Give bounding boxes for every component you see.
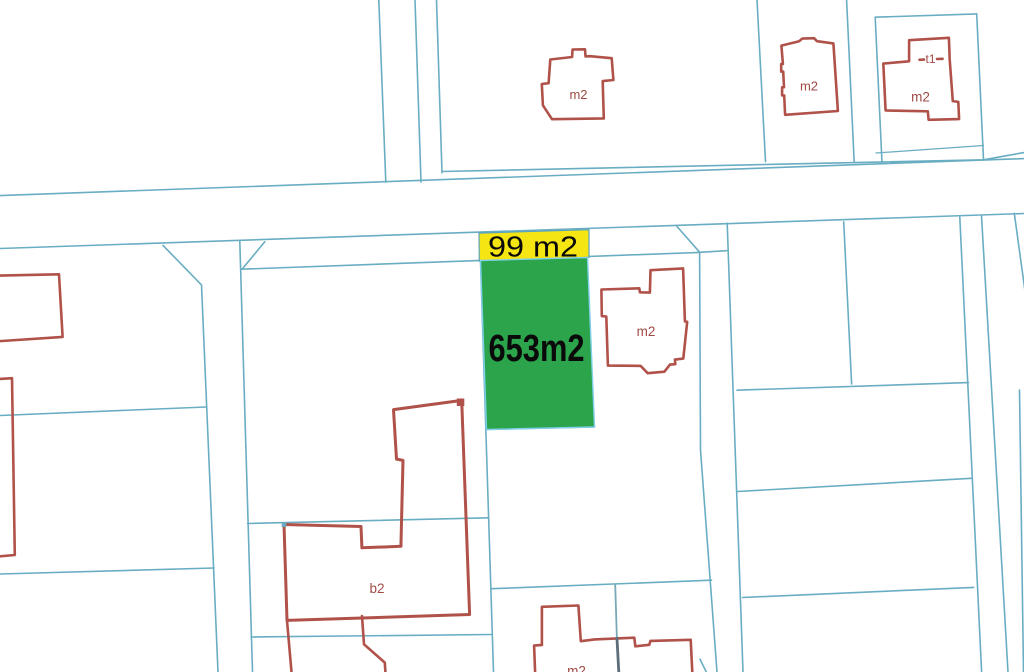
svg-text:m2: m2	[567, 664, 586, 672]
svg-text:m2: m2	[911, 90, 930, 105]
svg-text:99 m2: 99 m2	[488, 232, 578, 264]
svg-text:m2: m2	[637, 324, 656, 339]
svg-text:b2: b2	[369, 581, 384, 596]
svg-text:t1: t1	[925, 52, 935, 66]
svg-text:653m2: 653m2	[489, 328, 585, 370]
svg-text:m2: m2	[800, 79, 818, 94]
svg-text:m2: m2	[569, 87, 587, 102]
